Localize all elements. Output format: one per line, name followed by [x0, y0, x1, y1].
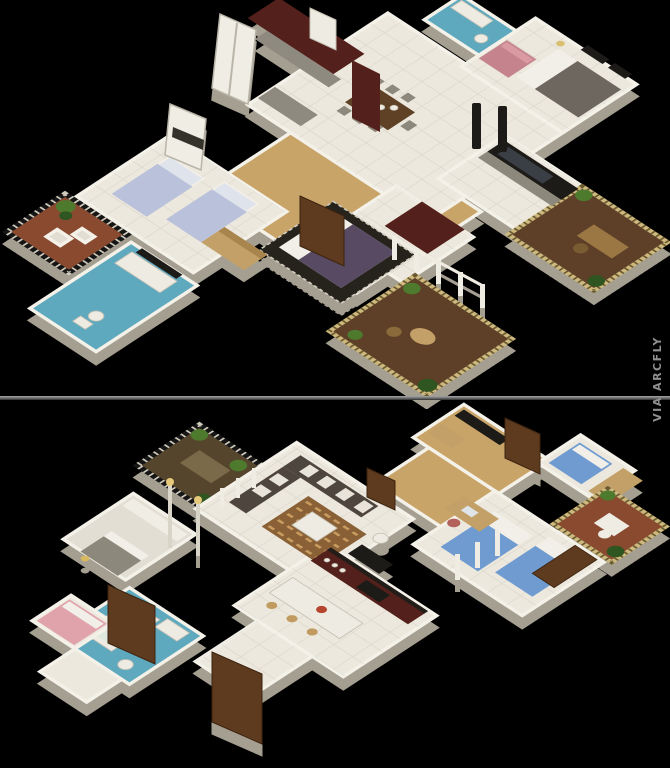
bedroom-top-right-floor	[538, 435, 647, 506]
panel-divider	[0, 396, 670, 400]
floor-plan-render-bottom	[0, 400, 670, 768]
floor-plan-render-top	[0, 0, 670, 397]
bedroom-left-floor	[56, 493, 195, 584]
speaker	[472, 103, 481, 149]
screenshot-root: VIA ARCFLY	[0, 0, 670, 768]
apartment-top	[0, 0, 670, 397]
floor-lamp	[196, 500, 200, 556]
floor-lamp	[168, 482, 172, 548]
apartment-bottom	[0, 400, 670, 768]
speaker	[498, 106, 507, 152]
watermark-text: VIA ARCFLY	[651, 319, 667, 439]
